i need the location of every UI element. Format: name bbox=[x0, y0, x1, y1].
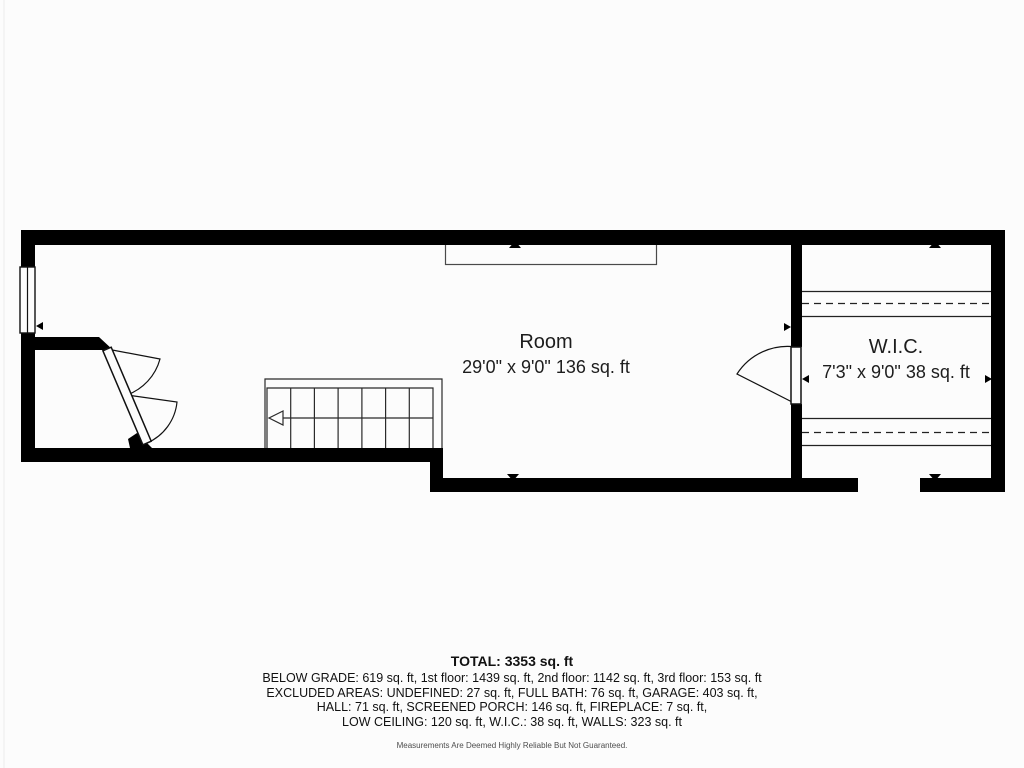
floorplan-page: Room 29'0" x 9'0" 136 sq. ft W.I.C. 7'3"… bbox=[0, 0, 1024, 768]
wall-wic-divider-lower bbox=[791, 404, 802, 478]
area-summary: TOTAL: 3353 sq. ft BELOW GRADE: 619 sq. … bbox=[0, 653, 1024, 751]
summary-disclaimer: Measurements Are Deemed Highly Reliable … bbox=[0, 741, 1024, 751]
staircase bbox=[265, 379, 442, 448]
wall-bottom-right bbox=[920, 478, 1005, 492]
summary-line: LOW CEILING: 120 sq. ft, W.I.C.: 38 sq. … bbox=[0, 715, 1024, 730]
marker-window bbox=[36, 322, 43, 330]
window-symbol bbox=[20, 267, 35, 333]
marker-divider-wall bbox=[784, 323, 791, 331]
stair-direction-arrow bbox=[269, 411, 283, 425]
wall-top bbox=[21, 230, 1005, 245]
summary-line: HALL: 71 sq. ft, SCREENED PORCH: 146 sq.… bbox=[0, 700, 1024, 715]
room-name: Room bbox=[396, 330, 696, 355]
wall-wic-divider-upper bbox=[791, 245, 802, 347]
summary-line: BELOW GRADE: 619 sq. ft, 1st floor: 1439… bbox=[0, 671, 1024, 686]
wall-bottom-mid bbox=[430, 478, 858, 492]
room-dimensions: 29'0" x 9'0" 136 sq. ft bbox=[396, 355, 696, 380]
summary-line: EXCLUDED AREAS: UNDEFINED: 27 sq. ft, FU… bbox=[0, 686, 1024, 701]
stair-outer-outline bbox=[265, 379, 442, 448]
door-panel-diagonal bbox=[103, 347, 151, 445]
room-label-wic: W.I.C. 7'3" x 9'0" 38 sq. ft bbox=[776, 335, 1016, 385]
wall-interior-closet bbox=[21, 337, 113, 350]
wic-name: W.I.C. bbox=[776, 335, 1016, 360]
room-label-room: Room 29'0" x 9'0" 136 sq. ft bbox=[396, 330, 696, 380]
wall-left-upper bbox=[21, 245, 35, 268]
wic-dimensions: 7'3" x 9'0" 38 sq. ft bbox=[776, 360, 1016, 385]
summary-total: TOTAL: 3353 sq. ft bbox=[0, 653, 1024, 670]
double-door-diagonal bbox=[103, 347, 177, 445]
wall-bottom-left bbox=[21, 448, 443, 462]
